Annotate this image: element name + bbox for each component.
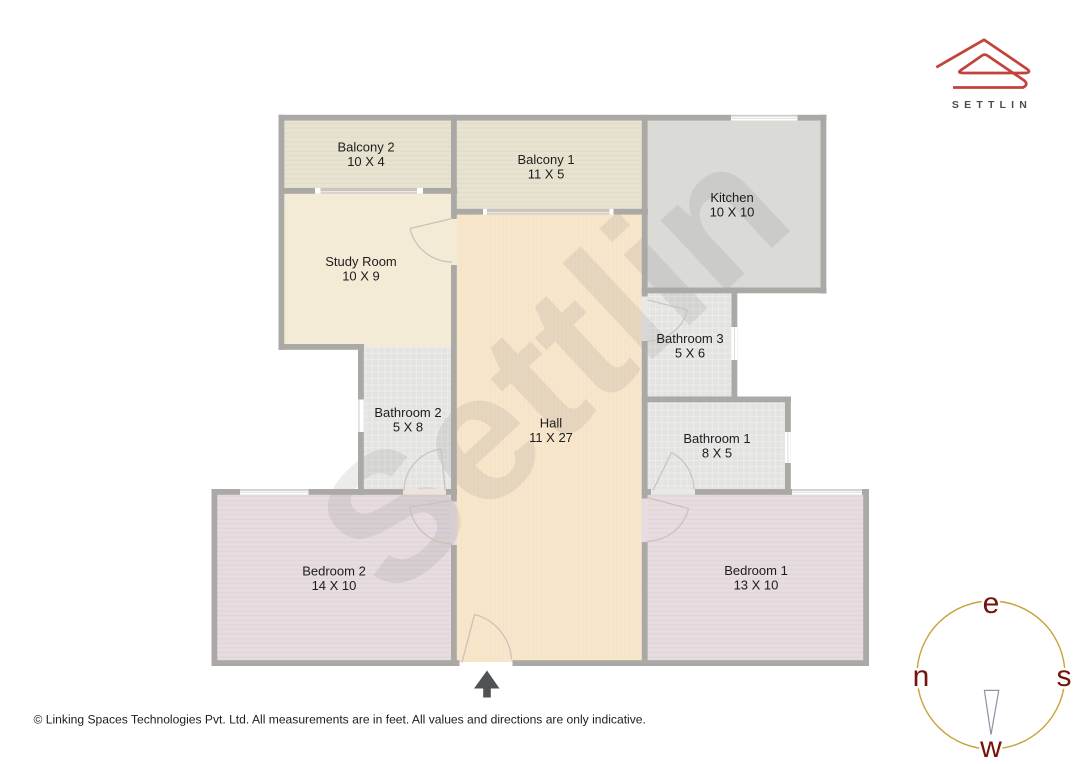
- svg-text:11 X 5: 11 X 5: [528, 167, 565, 182]
- svg-text:Kitchen: Kitchen: [710, 190, 753, 205]
- svg-text:10 X 4: 10 X 4: [347, 154, 385, 169]
- svg-text:Hall: Hall: [540, 416, 563, 431]
- svg-text:Study Room: Study Room: [325, 254, 397, 269]
- svg-text:10 X 9: 10 X 9: [342, 269, 380, 284]
- svg-text:11 X 27: 11 X 27: [529, 430, 573, 445]
- svg-text:w: w: [979, 731, 1002, 764]
- svg-text:Balcony 1: Balcony 1: [517, 152, 574, 167]
- svg-text:8 X 5: 8 X 5: [702, 446, 732, 461]
- svg-text:5 X 6: 5 X 6: [675, 346, 705, 361]
- svg-text:Bathroom 2: Bathroom 2: [374, 405, 441, 420]
- svg-text:s: s: [1057, 660, 1072, 693]
- svg-text:14 X 10: 14 X 10: [312, 578, 357, 593]
- svg-text:© Linking Spaces Technologies: © Linking Spaces Technologies Pvt. Ltd. …: [34, 713, 646, 727]
- svg-text:Bathroom 3: Bathroom 3: [656, 331, 723, 346]
- svg-text:Bathroom 1: Bathroom 1: [683, 431, 750, 446]
- svg-text:10 X 10: 10 X 10: [710, 205, 755, 220]
- svg-text:13 X 10: 13 X 10: [734, 578, 779, 593]
- svg-text:Bedroom 1: Bedroom 1: [724, 563, 788, 578]
- svg-text:SETTLIN: SETTLIN: [952, 99, 1032, 111]
- svg-text:Bedroom 2: Bedroom 2: [302, 564, 366, 579]
- svg-text:n: n: [913, 660, 930, 693]
- svg-text:e: e: [983, 587, 1000, 620]
- svg-text:Balcony 2: Balcony 2: [337, 140, 394, 155]
- svg-text:5 X 8: 5 X 8: [393, 420, 423, 435]
